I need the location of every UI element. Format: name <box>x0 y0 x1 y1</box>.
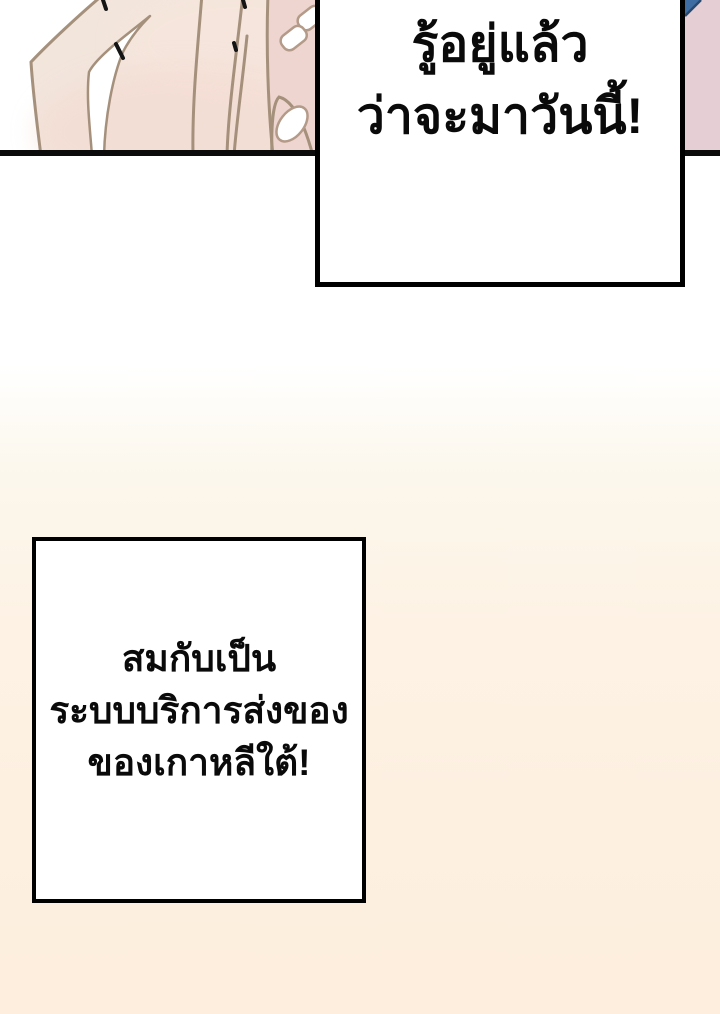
speech-bubble-bottom: สมกับเป็น ระบบบริการส่งของ ของเกาหลีใต้! <box>32 537 366 903</box>
comic-page: รู้อยู่แล้ว ว่าจะมาวันนี้! สมกับเป็น ระบ… <box>0 0 720 1014</box>
speech-line: ของเกาหลีใต้! <box>88 737 311 789</box>
speech-line: ว่าจะมาวันนี้! <box>357 80 643 152</box>
speech-line: สมกับเป็น <box>122 633 276 685</box>
hand-illustration <box>31 0 360 156</box>
corner-clothing <box>685 0 720 151</box>
speech-line: รู้อยู่แล้ว <box>411 8 588 80</box>
pink-fabric <box>685 0 720 151</box>
speech-bubble-top: รู้อยู่แล้ว ว่าจะมาวันนี้! <box>315 0 685 287</box>
speech-line: ระบบบริการส่งของ <box>49 685 348 737</box>
